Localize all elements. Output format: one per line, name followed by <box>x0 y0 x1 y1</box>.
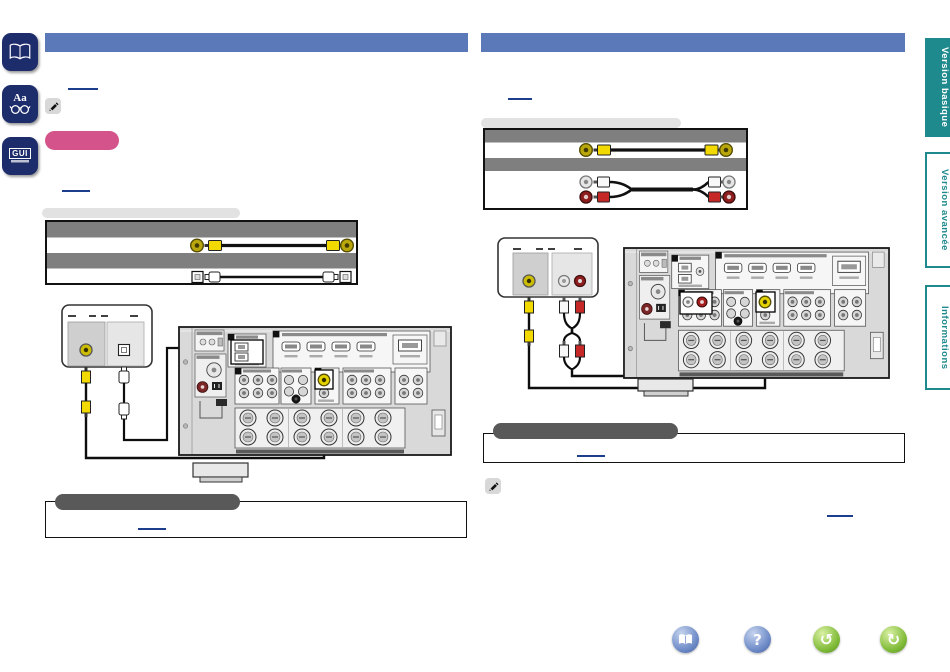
gui-guide-button[interactable]: GUI <box>2 137 38 175</box>
left-section-header-bar <box>45 33 468 52</box>
gui-icon: GUI <box>9 148 31 159</box>
open-book-icon <box>8 42 32 62</box>
video-audio-cable-box <box>483 128 748 210</box>
reading-glasses-icon <box>9 104 31 115</box>
page-reference-link[interactable] <box>62 190 90 192</box>
tab-version-avancee-label: Version avancée <box>939 169 950 251</box>
page-reference-link[interactable] <box>68 88 98 90</box>
text-lookup-button[interactable]: Aa <box>2 85 38 123</box>
tab-informations[interactable]: Informations <box>925 285 950 390</box>
pencil-icon <box>48 101 59 112</box>
gui-underline-decoration <box>11 160 29 164</box>
help-nav-button[interactable]: ? <box>744 626 771 653</box>
page-reference-link[interactable] <box>508 98 532 100</box>
note-icon <box>485 478 501 494</box>
manual-pages-button[interactable] <box>2 33 38 71</box>
receiver-rear-panel <box>624 248 889 378</box>
back-nav-button[interactable]: ↺ <box>813 626 840 653</box>
question-mark-icon: ? <box>753 631 762 649</box>
video-input-highlight <box>756 292 775 312</box>
tab-version-avancee[interactable]: Version avancée <box>925 152 950 268</box>
pencil-icon <box>488 481 499 492</box>
source-device-rear-panel <box>498 238 598 297</box>
video-cable-label-band <box>485 130 746 143</box>
text-lookup-label: Aa <box>13 93 26 103</box>
rotate-left-arrow-icon: ↺ <box>820 632 833 648</box>
subsection-title-bar <box>42 208 240 218</box>
tab-informations-label: Informations <box>939 306 950 370</box>
tab-version-basique[interactable]: Version basique <box>925 38 950 137</box>
video-optical-cable-box <box>45 220 358 285</box>
video-monitor-out-highlight <box>315 370 333 389</box>
open-book-icon <box>678 633 693 646</box>
video-cable-label-band <box>47 222 356 238</box>
tv-connection-diagram <box>42 295 467 490</box>
optical-input-highlight <box>231 340 263 364</box>
remark-pill <box>55 494 240 510</box>
remark-pill <box>493 423 678 439</box>
rotate-right-arrow-icon: ↻ <box>887 632 900 648</box>
audio-cable-label-band <box>485 158 746 171</box>
power-cord-block <box>193 463 248 482</box>
important-badge <box>45 131 119 150</box>
receiver-rear-panel <box>179 327 451 455</box>
settop-box-connection-diagram <box>480 230 910 405</box>
note-icon <box>45 98 61 114</box>
audio-input-highlight <box>680 292 712 314</box>
page-reference-link[interactable] <box>138 528 166 530</box>
tv-optical-jack <box>119 345 130 356</box>
optical-cable-label-band <box>47 253 356 269</box>
contents-nav-button[interactable] <box>672 626 699 653</box>
power-cord-block <box>638 379 693 396</box>
page-reference-link[interactable] <box>577 455 605 457</box>
forward-nav-button[interactable]: ↻ <box>880 626 907 653</box>
tab-version-basique-label: Version basique <box>939 47 950 127</box>
subsection-title-bar <box>481 118 681 128</box>
page-reference-link[interactable] <box>827 515 853 517</box>
right-section-header-bar <box>481 33 905 52</box>
tv-rear-panel <box>62 305 152 367</box>
manual-page: Aa GUI Version basique Version avancée I… <box>0 0 950 672</box>
